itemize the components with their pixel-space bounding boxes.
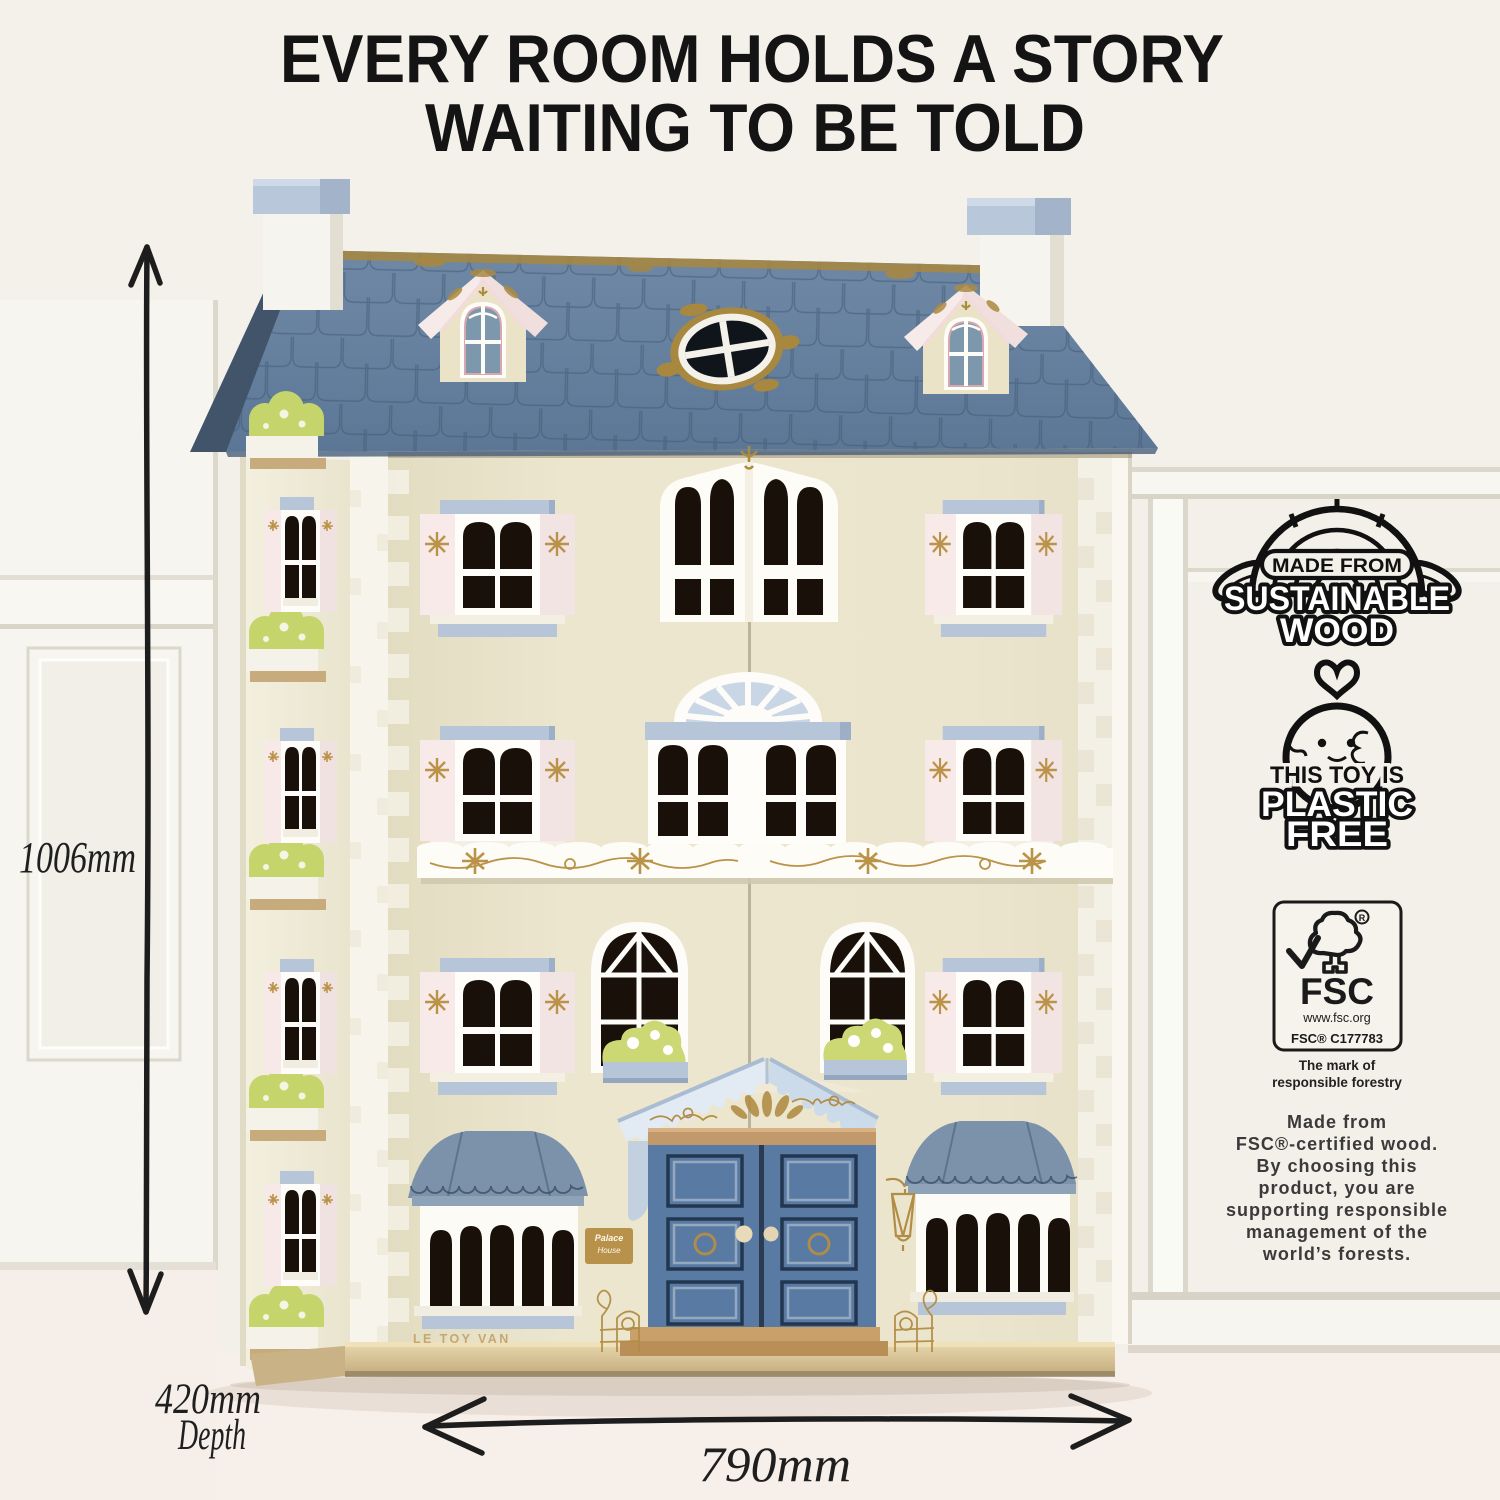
svg-text:EVERY ROOM HOLDS A STORY: EVERY ROOM HOLDS A STORY bbox=[280, 21, 1224, 97]
svg-text:product, you are: product, you are bbox=[1258, 1178, 1415, 1198]
svg-text:FREE: FREE bbox=[1286, 815, 1388, 854]
svg-text:FSC®-certified wood.: FSC®-certified wood. bbox=[1236, 1134, 1438, 1154]
svg-text:www.fsc.org: www.fsc.org bbox=[1302, 1011, 1370, 1025]
svg-text:management of the: management of the bbox=[1246, 1222, 1428, 1242]
svg-text:FSC: FSC bbox=[1300, 971, 1374, 1012]
svg-text:world’s forests.: world’s forests. bbox=[1262, 1244, 1411, 1264]
svg-text:supporting responsible: supporting responsible bbox=[1226, 1200, 1448, 1220]
svg-text:WOOD: WOOD bbox=[1280, 612, 1394, 650]
svg-text:790mm: 790mm bbox=[699, 1436, 851, 1492]
svg-text:FSC® C177783: FSC® C177783 bbox=[1291, 1031, 1383, 1046]
svg-text:By choosing this: By choosing this bbox=[1256, 1156, 1417, 1176]
svg-text:1006mm: 1006mm bbox=[19, 833, 136, 882]
svg-text:Made from: Made from bbox=[1287, 1112, 1387, 1132]
svg-text:MADE FROM: MADE FROM bbox=[1272, 556, 1402, 577]
svg-text:R: R bbox=[1359, 913, 1366, 923]
svg-text:Depth: Depth bbox=[177, 1412, 246, 1459]
svg-text:The mark of: The mark of bbox=[1299, 1058, 1376, 1073]
svg-text:LE TOY VAN: LE TOY VAN bbox=[413, 1332, 511, 1346]
svg-text:Palace: Palace bbox=[595, 1233, 624, 1243]
svg-text:responsible forestry: responsible forestry bbox=[1272, 1075, 1402, 1090]
svg-text:WAITING TO BE TOLD: WAITING TO BE TOLD bbox=[425, 90, 1085, 166]
svg-text:House: House bbox=[597, 1246, 621, 1255]
